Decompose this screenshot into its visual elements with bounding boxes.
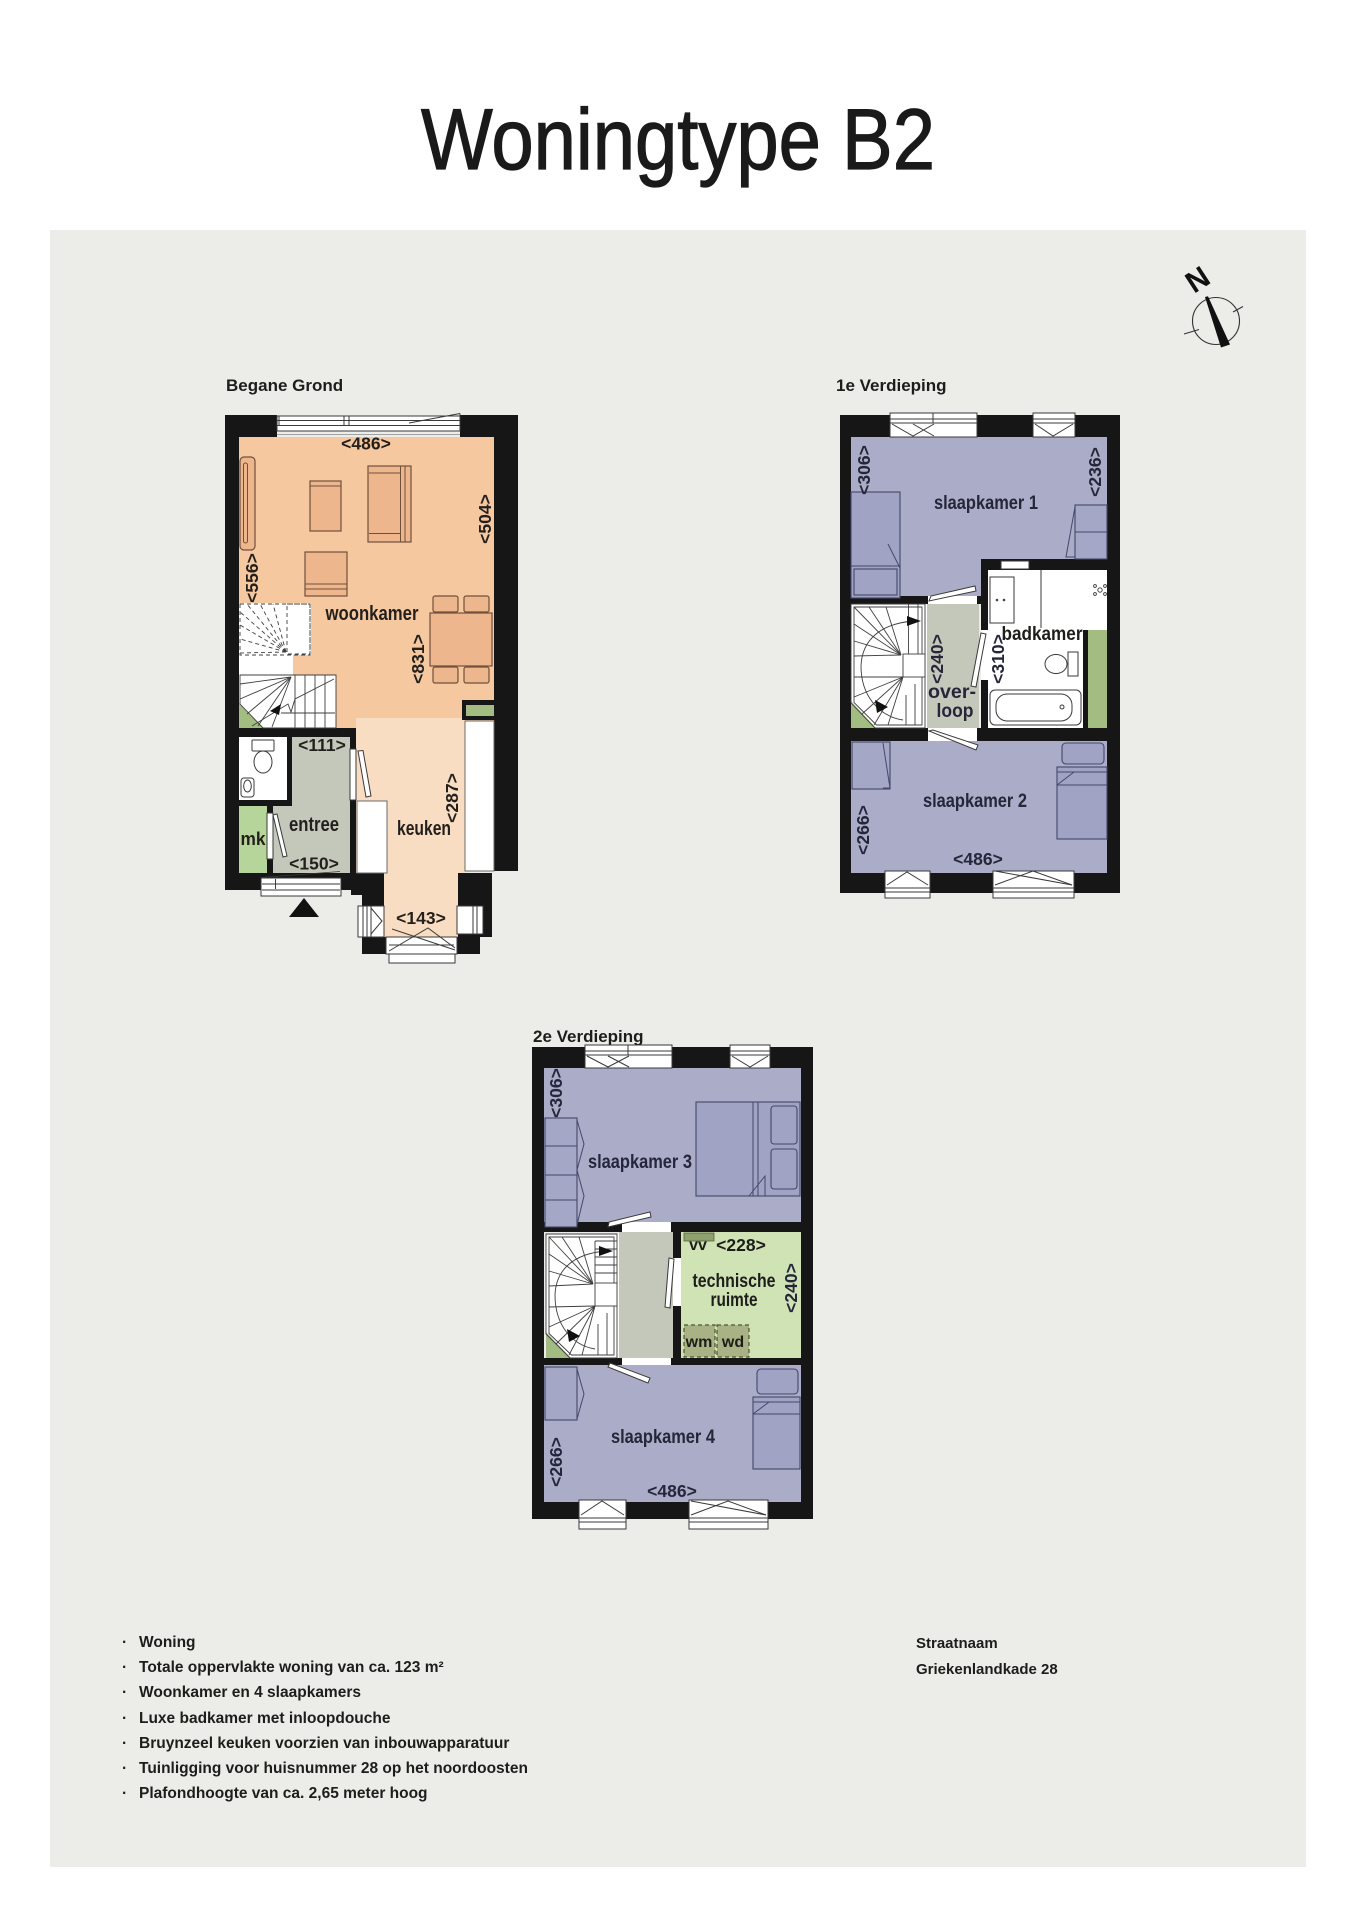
svg-text:ruimte: ruimte	[711, 1290, 758, 1311]
svg-text:<240>: <240>	[781, 1263, 801, 1313]
svg-text:wd: wd	[721, 1334, 744, 1351]
svg-text:<556>: <556>	[242, 553, 262, 603]
svg-text:<831>: <831>	[408, 634, 428, 684]
svg-text:<486>: <486>	[341, 434, 391, 454]
svg-text:wm: wm	[685, 1334, 713, 1351]
svg-text:<240>: <240>	[927, 634, 947, 684]
svg-text:over-: over-	[928, 682, 976, 703]
svg-text:<266>: <266>	[546, 1437, 566, 1487]
svg-text:<266>: <266>	[853, 805, 873, 855]
svg-text:woonkamer: woonkamer	[325, 603, 419, 625]
svg-text:entree: entree	[289, 814, 339, 836]
svg-text:<486>: <486>	[953, 849, 1003, 869]
svg-text:slaapkamer 2: slaapkamer 2	[923, 791, 1027, 812]
svg-text:<504>: <504>	[475, 494, 495, 544]
svg-text:Woningtype B2: Woningtype B2	[421, 92, 935, 188]
svg-text:mk: mk	[241, 829, 267, 849]
svg-text:slaapkamer 4: slaapkamer 4	[611, 1427, 715, 1448]
svg-text:N: N	[1180, 260, 1216, 299]
svg-text:<486>: <486>	[647, 1481, 697, 1501]
svg-text:loop: loop	[937, 701, 974, 722]
svg-text:<143>: <143>	[396, 908, 446, 928]
svg-text:slaapkamer 1: slaapkamer 1	[934, 493, 1038, 514]
svg-text:slaapkamer 3: slaapkamer 3	[588, 1152, 692, 1173]
svg-text:technische: technische	[693, 1271, 776, 1292]
svg-text:<287>: <287>	[442, 773, 462, 823]
svg-text:<228>: <228>	[716, 1235, 766, 1255]
svg-text:badkamer: badkamer	[1002, 624, 1084, 645]
svg-text:<236>: <236>	[1085, 447, 1105, 497]
svg-text:<306>: <306>	[854, 445, 874, 495]
svg-text:<306>: <306>	[546, 1068, 566, 1118]
svg-text:<111>: <111>	[298, 735, 346, 755]
svg-text:vv: vv	[689, 1237, 707, 1254]
svg-text:<150>: <150>	[289, 854, 339, 874]
